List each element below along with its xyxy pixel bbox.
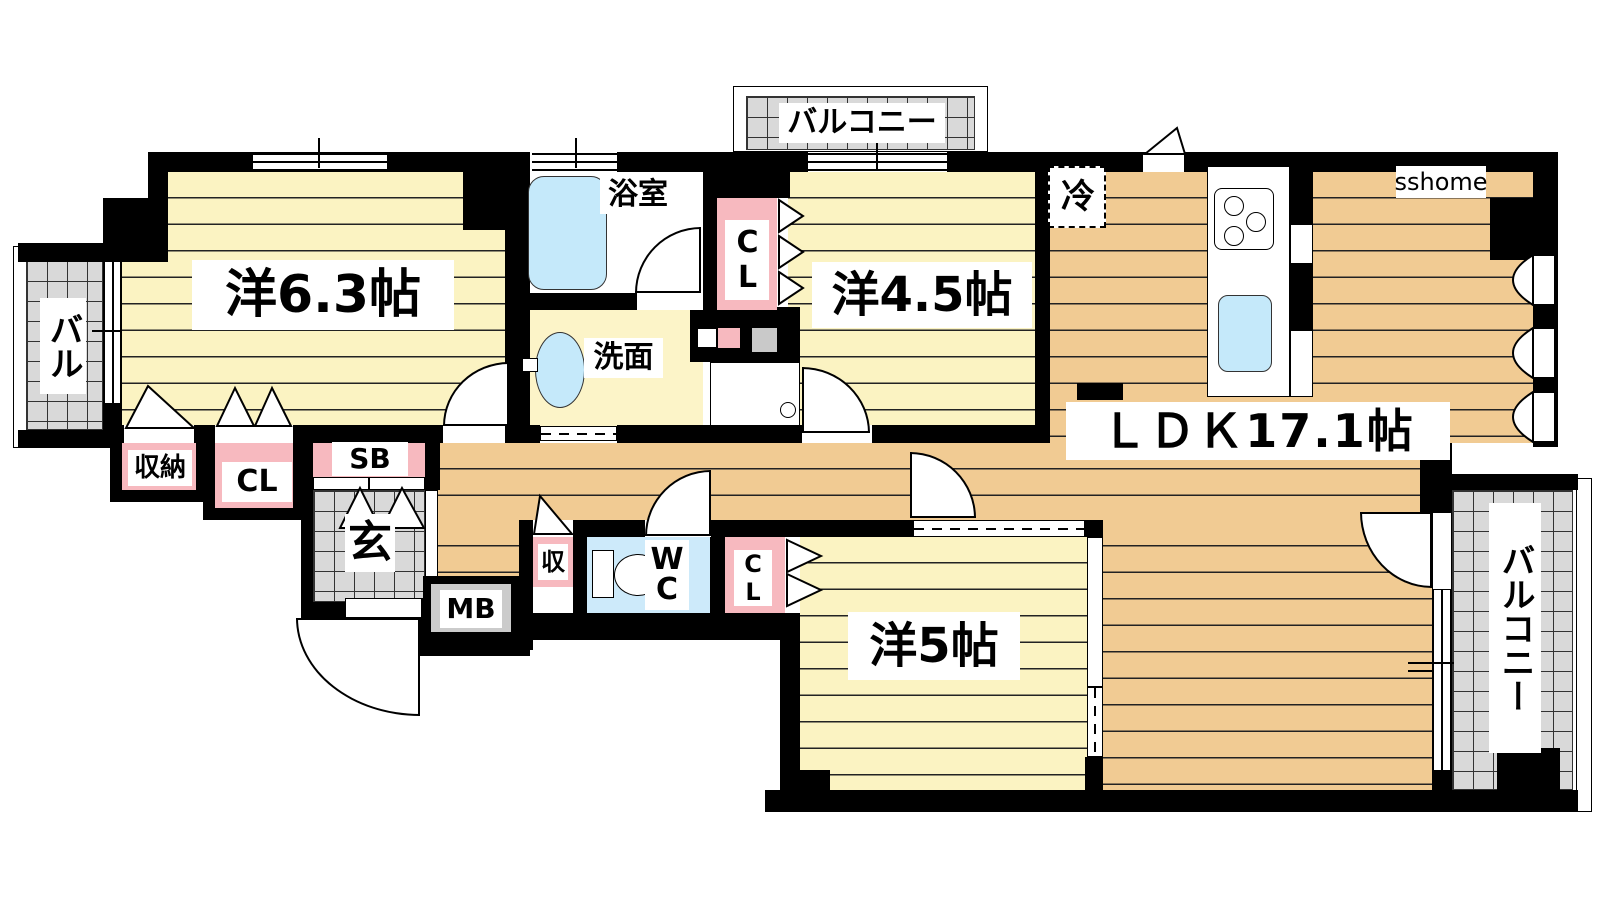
washer-drain [780,402,796,418]
wall [463,152,530,230]
shoe-box-label: SB [332,442,408,476]
storage-west-label: 収納 [128,450,192,486]
wall [1085,757,1103,792]
toilet-label: WC [645,540,689,610]
storage-west-door-swing [126,384,196,428]
kitchen-pass-through [1290,330,1313,397]
east-balcony-outline [1576,478,1592,812]
west-bedroom-label: 洋6.3帖 [192,260,454,330]
storage-shelf [533,587,573,613]
wall [313,425,425,443]
washroom-sliding-door [540,426,617,441]
west-balcony-window [103,262,122,403]
storage-hall-door-swing [534,494,574,536]
front-door-swing [296,618,420,716]
wall [517,293,637,310]
wall [617,425,802,443]
wall [703,198,717,310]
casement-swing [1491,253,1535,307]
wall [1432,770,1452,790]
window-tick [318,138,320,168]
north-balcony-label: バルコニー [779,103,945,143]
middle-bedroom-label: 洋4.5帖 [812,262,1032,328]
window-tick [1408,662,1454,664]
closet-west-label: CL [222,462,292,502]
wall [1433,474,1578,490]
wall [103,425,124,443]
service-door-swing [1145,126,1187,156]
window [253,153,387,171]
wall [573,537,587,613]
washroom-label: 洗面 [584,338,663,378]
east-balcony-label: バルコニー [1489,503,1541,753]
wall [785,770,830,790]
wall [505,425,540,443]
stove-burner [1224,196,1244,216]
casement-window [1533,255,1555,305]
kitchen-pass-through [1290,224,1313,264]
wall [103,198,168,262]
stove-burner [1224,226,1244,246]
bath-label: 浴室 [600,176,676,214]
utility-box-pink [718,328,740,348]
east-balcony-window [1432,590,1452,770]
wall [872,425,1050,443]
closet-west-folding-door [217,388,293,428]
wall [148,172,168,198]
floor-plan: 洋6.3帖 浴室 洗面 バルコニー CL 洋4.5帖 冷 ＬＤＫ17.1帖 ss… [0,0,1600,900]
wall [765,790,1578,812]
door-opening [637,293,703,310]
window-tick [575,138,577,168]
wall [425,425,443,443]
wall [18,243,110,262]
kitchen-wall [1290,264,1313,330]
closet-bath-folding-door [779,200,805,308]
wall [425,443,440,490]
casement-swing [1491,390,1535,444]
balcony-door-leaf [1432,512,1452,590]
casement-swing [1491,326,1535,380]
wall [780,613,800,790]
front-door-leaf [345,598,422,618]
room-partition [1087,537,1103,687]
storage-hall-label: 収 [538,544,568,580]
toilet-tank [592,550,614,598]
casement-window [1533,392,1555,442]
wall [790,152,808,172]
wall [703,152,790,198]
wall [1490,198,1533,260]
room-partition-sliding [1087,687,1103,757]
wall [711,520,913,537]
kitchen-sink [1218,295,1272,372]
washbasin [535,332,585,408]
casement-window [1533,328,1555,378]
window-tick [92,330,122,332]
faucet [522,358,538,372]
closet-south-label: CL [734,550,772,606]
meter-box-label: MB [440,590,502,628]
window-tick [1408,670,1434,672]
south-bedroom-label: 洋5帖 [848,612,1020,680]
south-bedroom-sliding-door [913,520,1085,537]
wall [573,520,645,537]
kitchen-wall [1290,166,1313,224]
bathtub [528,176,607,290]
door-opening [1143,154,1184,172]
closet-opening [215,426,293,443]
utility-box-gray [752,328,777,352]
entrance-label: 玄 [345,514,395,572]
wall [1085,520,1103,537]
brand-label: sshome [1396,166,1486,198]
closet-bath-label: CL [725,220,769,300]
door-opening [443,425,505,443]
stove-burner [1246,212,1266,232]
fridge-label: 冷 [1056,174,1100,220]
utility-box-white [697,328,717,348]
wall [18,430,110,448]
wall [1077,383,1123,400]
west-balcony-label: バル [40,298,86,394]
corridor-entry-floor [438,520,519,578]
ldk-label: ＬＤＫ17.1帖 [1066,402,1450,460]
wall [194,425,215,443]
closet-south-folding-door [787,540,823,608]
wall [1497,748,1560,790]
